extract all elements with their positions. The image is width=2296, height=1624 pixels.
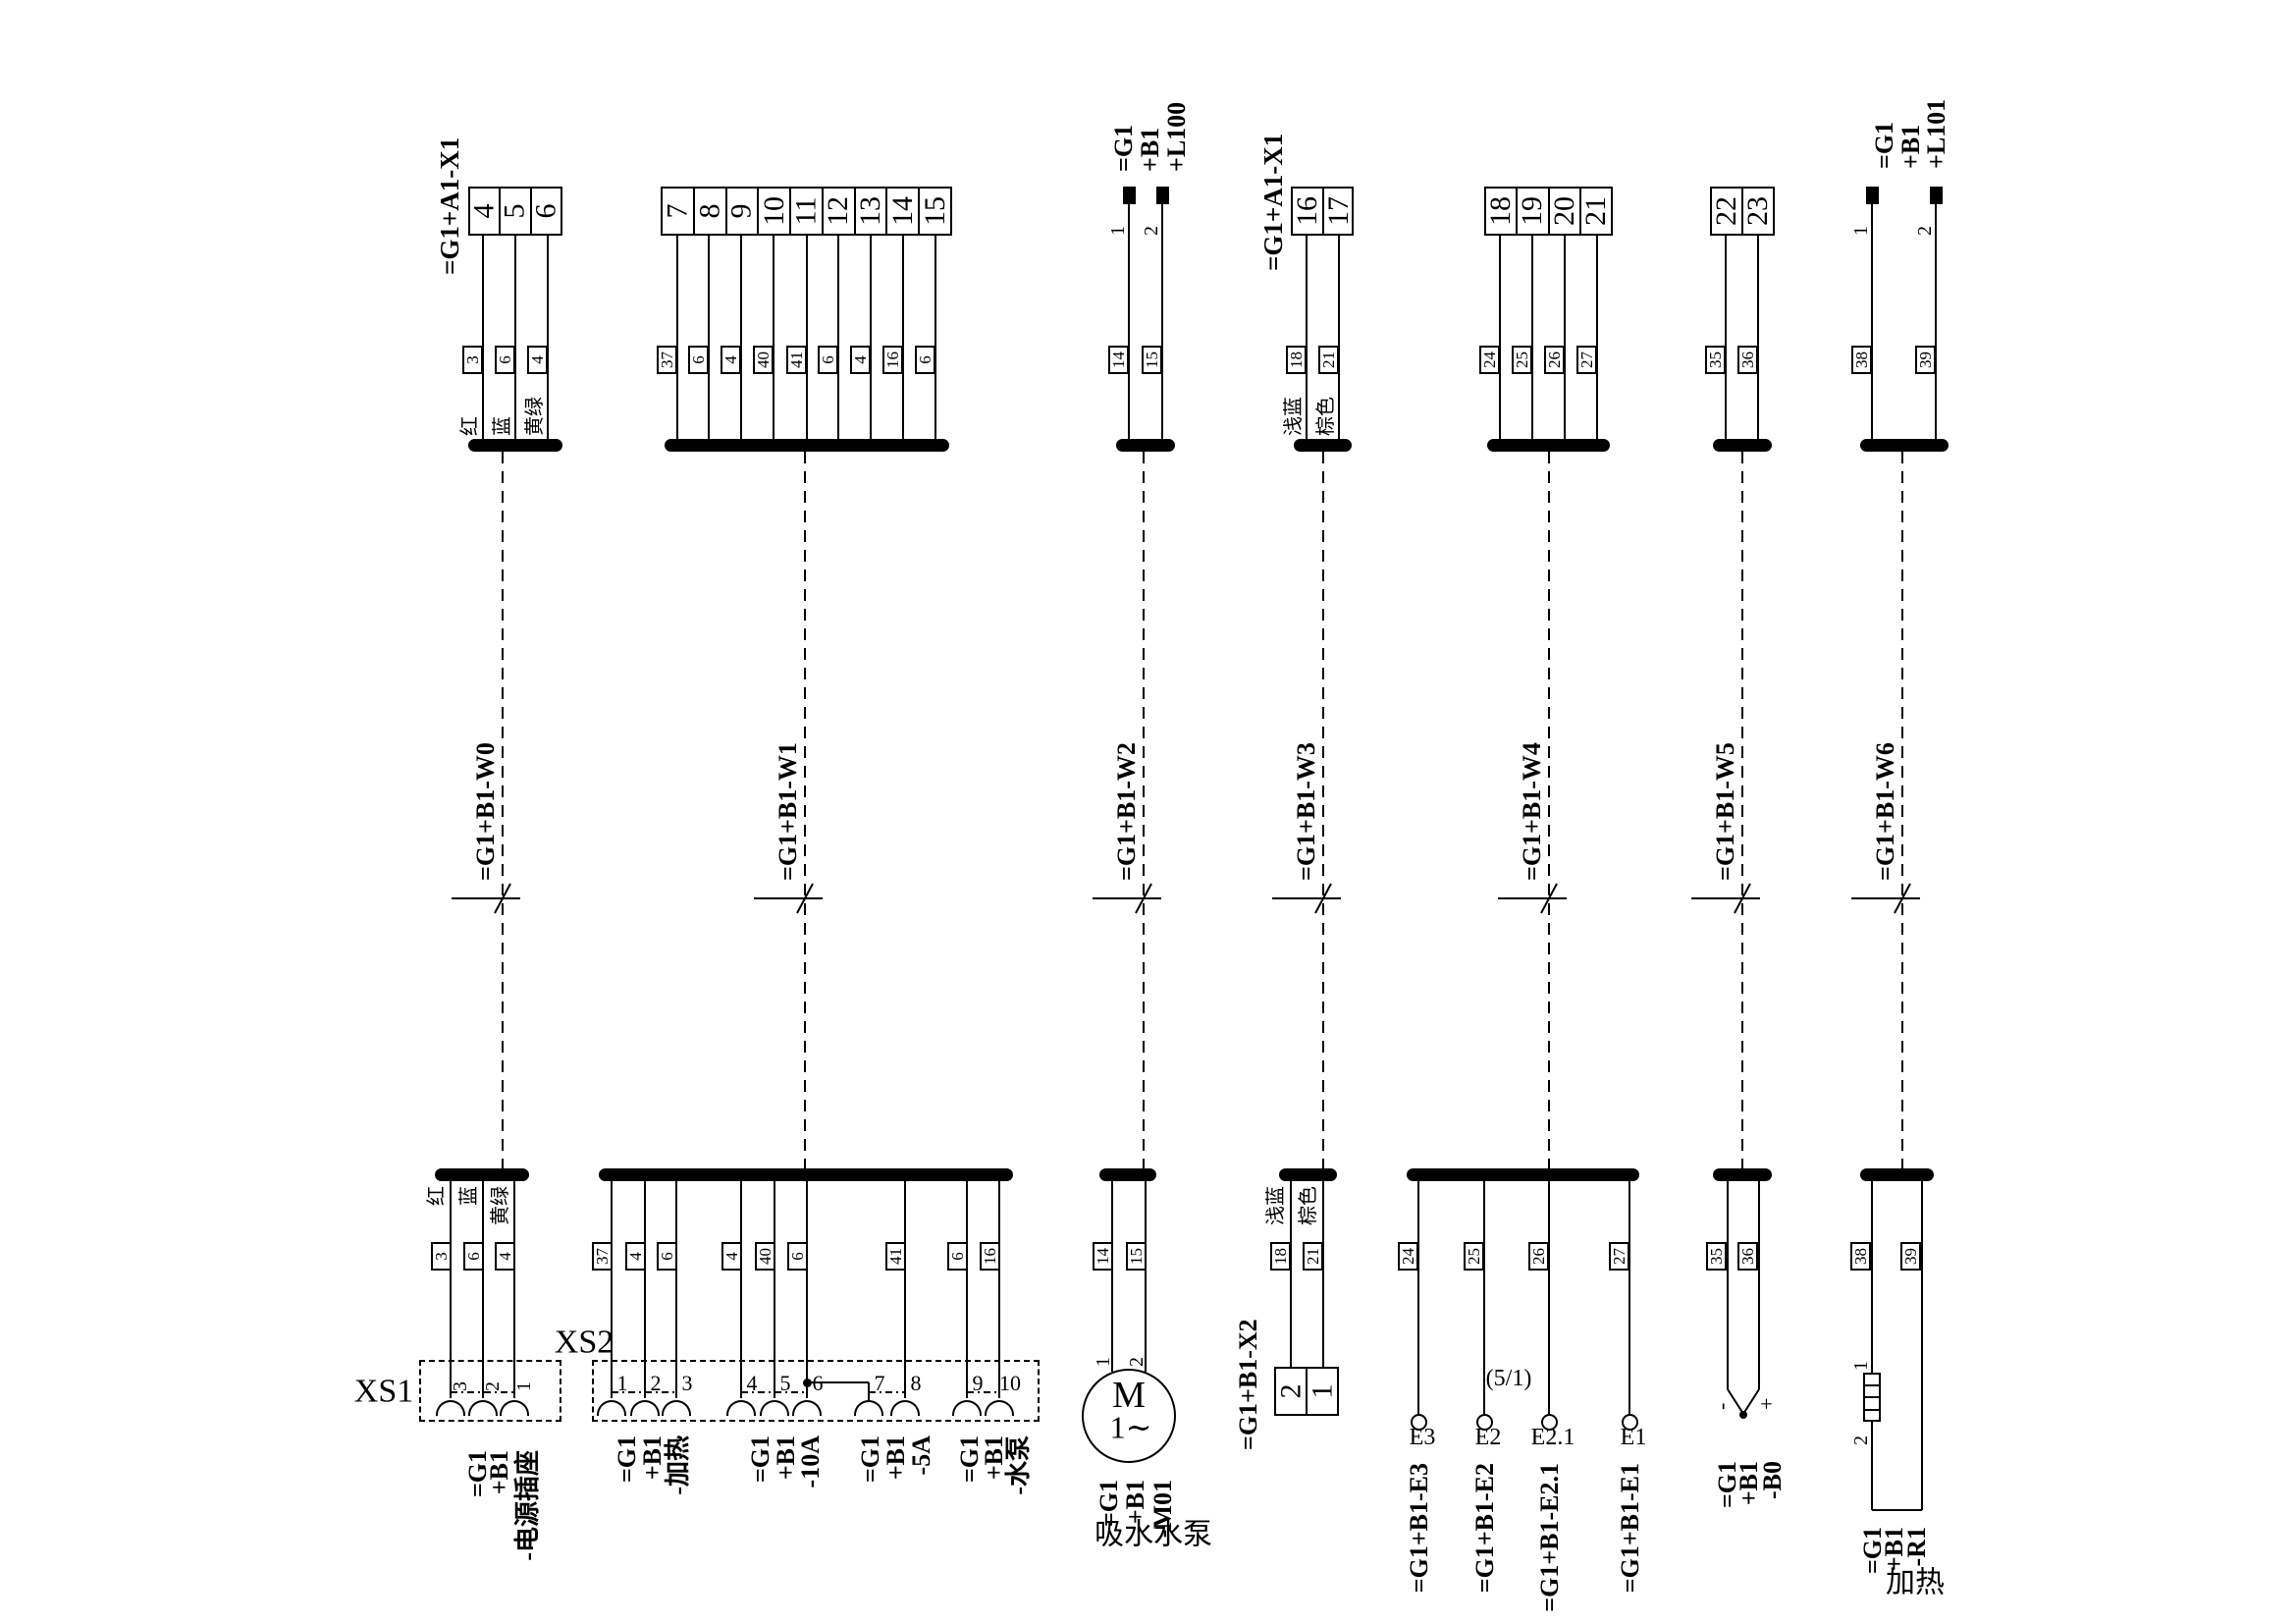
wire-number: 36 — [1737, 346, 1758, 374]
wire-number: 37 — [592, 1242, 613, 1271]
wire-number: 24 — [1479, 346, 1500, 374]
wire — [1758, 1180, 1760, 1389]
wire-number: 15 — [1126, 1242, 1147, 1271]
terminal-cell: 8 — [693, 189, 725, 234]
wire-number: 6 — [463, 1242, 484, 1271]
wire-number: 41 — [786, 346, 807, 374]
connector-label: XS2 — [555, 1324, 614, 1360]
wire — [740, 1180, 742, 1398]
wire — [1871, 1180, 1873, 1373]
terminal-block: 789101112131415 — [661, 187, 952, 236]
polarity-sign: - — [1709, 1403, 1734, 1410]
wire-color-label: 红 — [426, 1186, 449, 1206]
cable-label: =G1+B1-W3 — [1292, 742, 1321, 881]
wire — [740, 236, 742, 439]
wire — [998, 1180, 1000, 1398]
terminal-cell: 19 — [1516, 189, 1547, 234]
terminal-cell: 18 — [1486, 189, 1516, 234]
pin-number: 1 — [1093, 1357, 1115, 1367]
wire-color-label: 蓝 — [492, 416, 514, 436]
wire — [1727, 1180, 1729, 1389]
wire — [513, 1180, 515, 1398]
wire-color-label: 棕色 — [1298, 1186, 1320, 1225]
wire — [611, 1180, 613, 1398]
terminal-cell: 6 — [530, 189, 561, 234]
pin-group-line — [612, 1391, 676, 1393]
wire — [966, 1180, 968, 1398]
wire-number: 15 — [1142, 346, 1162, 374]
wire — [482, 1180, 484, 1398]
equipment-label: -5A — [907, 1435, 936, 1475]
wire — [806, 1180, 808, 1398]
pin-number: 8 — [911, 1372, 922, 1395]
wire — [482, 236, 484, 439]
wire — [1629, 1180, 1630, 1414]
cable-line — [1548, 452, 1550, 1168]
wire — [1499, 236, 1501, 439]
jumper-wire — [868, 1382, 870, 1400]
wire-number: 27 — [1576, 346, 1597, 374]
wire — [774, 1180, 775, 1398]
cable-sheath-bar — [1860, 439, 1949, 452]
wire-color-label: 浅蓝 — [1265, 1186, 1288, 1225]
wire-number: 41 — [885, 1242, 906, 1271]
wire-color-label: 黄绿 — [490, 1186, 512, 1225]
wire — [1871, 1422, 1873, 1510]
wire — [547, 236, 549, 439]
terminal-cell: 4 — [470, 189, 499, 234]
wire-number: 18 — [1270, 1242, 1291, 1271]
cable-line — [1901, 452, 1903, 1168]
terminal-cell: 12 — [822, 189, 854, 234]
wire-number: 4 — [721, 1242, 742, 1271]
equipment-label: -电源插座 — [513, 1450, 543, 1561]
pin-number: 2 — [1126, 1357, 1148, 1367]
pin-number: 1 — [1850, 226, 1873, 236]
device-label: =G1+A1-X1 — [435, 137, 465, 275]
pin-number: 2 — [482, 1381, 505, 1391]
wire — [904, 1180, 906, 1398]
wiring-diagram: =G1+A1-X14563红6蓝4黄绿789101112131415376440… — [0, 0, 2296, 1624]
cable-sheath-bar — [665, 439, 949, 452]
pin-number: 2 — [1914, 226, 1937, 236]
wire-number: 24 — [1398, 1242, 1418, 1271]
cable-label: =G1+B1-W2 — [1112, 742, 1142, 881]
wire — [1871, 204, 1873, 439]
resistor-segment-line — [1863, 1384, 1881, 1386]
cable-line — [1741, 452, 1743, 1168]
wire-number: 39 — [1915, 346, 1936, 374]
device-label: =G1+B1-X2 — [1234, 1319, 1263, 1450]
wire — [837, 236, 839, 439]
cable-sheath-bar — [1713, 439, 1772, 452]
pin-number: 2 — [1141, 226, 1163, 236]
wire — [773, 236, 774, 439]
wire — [676, 236, 678, 439]
cable-line — [502, 452, 504, 1168]
wire-number: 27 — [1609, 1242, 1629, 1271]
pin-number: 1 — [513, 1381, 536, 1391]
cable-line — [1143, 452, 1145, 1168]
wire-number: 4 — [527, 346, 548, 374]
wire-number: 6 — [915, 346, 935, 374]
wire — [1935, 204, 1937, 439]
wire-number: 25 — [1512, 346, 1532, 374]
wire — [1725, 236, 1727, 439]
wire-number: 36 — [1737, 1242, 1758, 1271]
terminal-block: 456 — [468, 187, 562, 236]
wire-number: 14 — [1093, 1242, 1113, 1271]
equipment-label: +B1 — [1136, 128, 1165, 172]
cable-sheath-bar — [1713, 1168, 1772, 1181]
wire — [806, 236, 808, 439]
equipment-label: +B1 — [485, 1450, 514, 1494]
cable-crossing-tick — [1498, 897, 1567, 899]
ground-terminal-label: E2 — [1475, 1425, 1502, 1450]
equipment-label: -B0 — [1758, 1461, 1788, 1499]
heater-caption: 加热 — [1886, 1567, 1945, 1599]
pin-number: 2 — [1850, 1435, 1873, 1445]
equipment-label: =G1 — [1870, 122, 1899, 169]
wire-number: 14 — [1108, 346, 1129, 374]
wire — [1531, 236, 1533, 439]
lamp-terminal — [1930, 187, 1943, 204]
wire-number: 3 — [462, 346, 483, 374]
pin-number: 3 — [450, 1381, 472, 1391]
wire-number: 16 — [980, 1242, 1000, 1271]
pin-number: 10 — [999, 1372, 1021, 1395]
cable-line — [1322, 452, 1324, 1168]
terminal-cell: 7 — [663, 189, 693, 234]
equipment-label: =G1+B1-E3 — [1405, 1463, 1434, 1593]
terminal-cell: 17 — [1322, 189, 1354, 234]
wire — [934, 236, 936, 439]
pin-number: 6 — [813, 1372, 824, 1395]
wire — [1757, 236, 1759, 439]
wire — [1338, 236, 1340, 439]
wire — [870, 236, 872, 439]
wire-number: 16 — [882, 346, 903, 374]
wire-number: 6 — [495, 346, 515, 374]
lamp-terminal — [1123, 187, 1136, 204]
wire — [514, 236, 516, 439]
cable-crossing-tick — [1691, 897, 1760, 899]
equipment-label: =G1+B1-E2.1 — [1535, 1463, 1565, 1612]
wire-color-label: 红 — [459, 416, 482, 436]
wire — [1128, 204, 1130, 439]
terminal-cell: 21 — [1579, 189, 1611, 234]
cable-crossing-tick — [1851, 897, 1920, 899]
wire-number: 38 — [1850, 1242, 1871, 1271]
wire-number: 6 — [657, 1242, 677, 1271]
wire — [1596, 236, 1598, 439]
terminal-cell: 20 — [1548, 189, 1579, 234]
equipment-label: +L100 — [1162, 102, 1192, 172]
cable-sheath-bar — [1487, 439, 1610, 452]
wire-number: 26 — [1528, 1242, 1549, 1271]
wire — [1306, 236, 1308, 439]
cable-label: =G1+B1-W5 — [1711, 742, 1740, 881]
device-label: =G1+A1-X1 — [1258, 134, 1289, 271]
terminal-block: 21 — [1274, 1367, 1339, 1416]
wire — [708, 236, 710, 439]
wire-number: 4 — [721, 346, 741, 374]
terminal-block: 2223 — [1710, 187, 1775, 236]
wire-color-label: 蓝 — [458, 1186, 481, 1206]
equipment-label: -R1 — [1902, 1527, 1932, 1566]
wire — [1921, 1180, 1923, 1510]
cable-crossing-tick — [452, 897, 520, 899]
wire — [902, 236, 904, 439]
motor-phase: 1∼ — [1110, 1410, 1152, 1444]
wire — [675, 1180, 677, 1398]
wire-number: 3 — [431, 1242, 452, 1271]
cable-sheath-bar — [1279, 1168, 1337, 1181]
wire — [1548, 1180, 1550, 1414]
terminal-cell: 14 — [885, 189, 918, 234]
terminal-block: 18192021 — [1484, 187, 1613, 236]
wire-color-label: 黄绿 — [524, 397, 547, 436]
ground-terminal-label: E3 — [1410, 1425, 1436, 1450]
wire — [1564, 236, 1566, 439]
pin-group-line — [741, 1391, 807, 1393]
sheet-reference: (5/1) — [1486, 1366, 1532, 1391]
equipment-label: +L101 — [1922, 99, 1951, 169]
terminal-cell: 9 — [725, 189, 758, 234]
wire-number: 35 — [1706, 1242, 1727, 1271]
wire-number: 18 — [1286, 346, 1307, 374]
wire-number: 40 — [753, 346, 774, 374]
equipment-label: +B1 — [1121, 1480, 1150, 1524]
cable-crossing-tick — [1272, 897, 1341, 899]
junction-dot — [1739, 1411, 1747, 1419]
cable-sheath-bar — [1116, 439, 1175, 452]
cable-label: =G1+B1-W1 — [774, 742, 803, 881]
equipment-label: -加热 — [664, 1435, 693, 1495]
pin-number: 1 — [1850, 1361, 1873, 1371]
wire — [1322, 1180, 1324, 1367]
polarity-sign: + — [1754, 1398, 1779, 1410]
equipment-label: =G1+B1-E1 — [1616, 1463, 1645, 1593]
wire — [1417, 1180, 1419, 1414]
wire — [1872, 1509, 1922, 1511]
connector-label: XS1 — [354, 1373, 413, 1409]
pin-number: 3 — [682, 1372, 693, 1395]
equipment-label: =G1 — [1109, 125, 1139, 172]
wire — [1145, 1180, 1147, 1372]
equipment-label: =G1+B1-E2 — [1470, 1463, 1500, 1593]
wire-number: 6 — [818, 346, 838, 374]
wire-number: 39 — [1900, 1242, 1921, 1271]
cable-label: =G1+B1-W6 — [1871, 742, 1900, 881]
wire-number: 6 — [947, 1242, 968, 1271]
cable-sheath-bar — [1099, 1168, 1156, 1181]
wire-number: 4 — [850, 346, 871, 374]
wire-color-label: 棕色 — [1315, 397, 1338, 436]
wire-number: 38 — [1851, 346, 1872, 374]
motor-caption: 吸水水泵 — [1095, 1519, 1212, 1551]
cable-sheath-bar — [1294, 439, 1352, 452]
jumper-wire — [807, 1381, 869, 1383]
resistor-segment-line — [1863, 1409, 1881, 1411]
terminal-cell: 10 — [757, 189, 789, 234]
wire-number: 40 — [755, 1242, 775, 1271]
lamp-terminal — [1156, 187, 1169, 204]
cable-crossing-tick — [754, 897, 823, 899]
pin-group-line — [967, 1391, 999, 1393]
ground-terminal-label: E1 — [1621, 1425, 1647, 1450]
cable-sheath-bar — [468, 439, 562, 452]
terminal-cell: 22 — [1712, 189, 1741, 234]
wire — [1161, 204, 1163, 439]
wire-number: 21 — [1318, 346, 1339, 374]
lamp-terminal — [1866, 187, 1879, 204]
equipment-label: -水泵 — [1004, 1435, 1034, 1495]
wire-number: 4 — [625, 1242, 646, 1271]
cable-sheath-bar — [1407, 1168, 1639, 1181]
cable-crossing-tick — [1093, 897, 1161, 899]
wire-number: 35 — [1705, 346, 1726, 374]
wire-number: 37 — [657, 346, 677, 374]
terminal-cell: 11 — [789, 189, 822, 234]
equipment-label: -10A — [796, 1435, 826, 1488]
pin-group-line — [451, 1391, 514, 1393]
wire — [1111, 1180, 1113, 1372]
terminal-cell: 23 — [1741, 189, 1773, 234]
wire — [644, 1180, 646, 1398]
wire-number: 6 — [688, 346, 709, 374]
terminal-block: 1617 — [1291, 187, 1354, 236]
ground-terminal-label: E2.1 — [1531, 1425, 1575, 1450]
terminal-cell: 5 — [499, 189, 529, 234]
wire — [450, 1180, 452, 1398]
pin-group-line — [869, 1391, 905, 1393]
cable-line — [804, 452, 806, 1168]
terminal-cell: 15 — [918, 189, 950, 234]
terminal-cell: 2 — [1276, 1369, 1306, 1414]
wire-number: 25 — [1464, 1242, 1484, 1271]
wire-color-label: 浅蓝 — [1283, 397, 1306, 436]
wire-number: 4 — [495, 1242, 515, 1271]
wire-number: 6 — [787, 1242, 808, 1271]
cable-label: =G1+B1-W4 — [1518, 742, 1547, 881]
cable-label: =G1+B1-W0 — [471, 742, 501, 881]
resistor-segment-line — [1863, 1396, 1881, 1398]
terminal-cell: 1 — [1306, 1369, 1337, 1414]
terminal-cell: 13 — [854, 189, 886, 234]
terminal-cell: 16 — [1293, 189, 1322, 234]
pin-number: 1 — [1107, 226, 1130, 236]
wire-number: 26 — [1544, 346, 1565, 374]
wire-number: 21 — [1303, 1242, 1323, 1271]
wire — [1290, 1180, 1292, 1367]
